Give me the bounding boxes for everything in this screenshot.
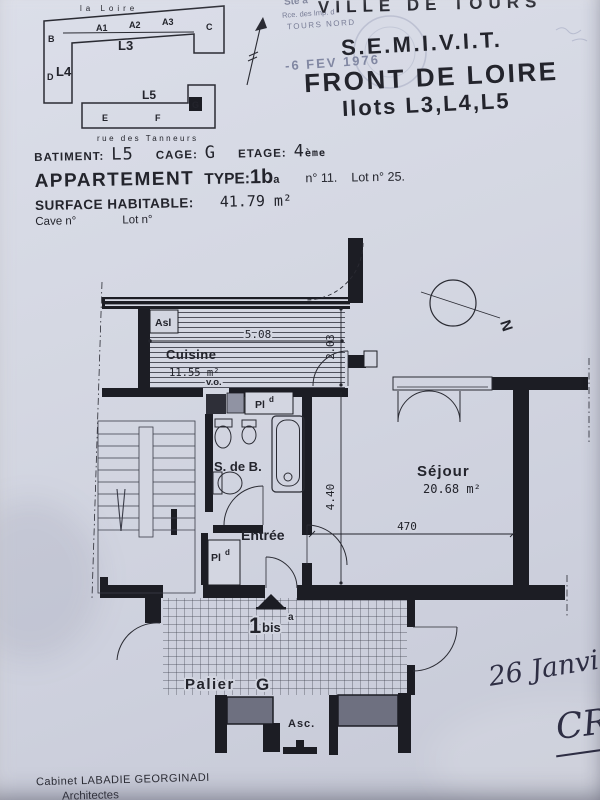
asl-label: Asl <box>155 317 171 329</box>
duct-shaft-light <box>227 393 244 413</box>
site-label-a2: A2 <box>129 20 141 30</box>
etage-label: ETAGE: <box>238 148 287 161</box>
cage-label: CAGE: <box>156 149 198 162</box>
dim-kitchen-width: 5.08 <box>245 328 272 341</box>
type-label: TYPE: <box>204 170 250 189</box>
room-label-bathroom: S. de B. <box>214 459 262 474</box>
room-label-landing: Palier <box>185 676 235 693</box>
lot-number: Lot n° 25. <box>351 170 405 185</box>
bidet-icon <box>242 426 256 444</box>
pillar-box <box>364 351 377 367</box>
dim-living-depth: 4.40 <box>324 484 337 511</box>
site-label-g: G <box>192 100 199 110</box>
cave-label: Cave n° <box>35 215 76 228</box>
handwritten-initials: CR <box>554 702 600 748</box>
room-label-entry: Entrée <box>241 527 285 543</box>
batiment-label: BATIMENT: <box>34 151 104 164</box>
scanned-floor-plan-page: la Loire A1 A2 A3 C B L3 D L4 L5 E F G r… <box>0 0 600 800</box>
site-label-l3: L3 <box>118 38 133 53</box>
site-label-f: F <box>155 113 161 123</box>
elevator-car-right <box>338 695 398 726</box>
room-label-cuisine: Cuisine <box>166 347 216 362</box>
appartement-label: APPARTEMENT <box>34 168 194 193</box>
type-sup: a <box>273 174 279 186</box>
surface-value: 41.79 m² <box>220 192 293 211</box>
room-label-living: Séjour <box>417 463 470 480</box>
apartment-info-block: BATIMENT: L5 CAGE: G ETAGE: 4ème APPARTE… <box>34 140 406 228</box>
site-label-d: D <box>47 72 54 82</box>
closet-label-bottom-sup: d <box>225 548 230 557</box>
batiment-value: L5 <box>111 144 134 164</box>
apartment-row: APPARTEMENT TYPE: 1ba n° 11. Lot n° 25. <box>34 164 405 193</box>
bathroom-fixtures <box>213 416 304 494</box>
architect-title: Architectes <box>62 789 119 800</box>
site-label-a1: A1 <box>96 23 108 33</box>
duct-shaft-dark <box>206 394 226 414</box>
unit-number-small: bis <box>262 620 281 635</box>
elevator-car-left <box>227 697 273 724</box>
faint-pen-marks <box>556 28 587 41</box>
north-indicator-icon <box>421 280 500 326</box>
street-label: rue des Tanneurs <box>97 134 199 143</box>
lot-label2: Lot n° <box>122 214 152 227</box>
closet-label-bottom: Pl <box>211 552 221 564</box>
toilet-icon <box>215 426 231 448</box>
surface-label: SURFACE HABITABLE: <box>35 195 194 213</box>
unit-number-sup: a <box>288 612 294 623</box>
etage-sup: ème <box>305 148 326 159</box>
elevator-label: Asc. <box>288 718 315 730</box>
dim-kitchen-depth: 2.03 <box>325 334 337 359</box>
axis-line-left <box>92 282 102 598</box>
site-label-l5: L5 <box>142 88 156 102</box>
apartment-number: n° 11. <box>305 171 337 186</box>
site-label-l4: L4 <box>56 64 72 79</box>
cage-value: G <box>205 143 217 163</box>
site-plan <box>44 6 267 128</box>
closet-label-top: Pl <box>255 399 265 411</box>
closet-label-top-sup: d <box>269 395 274 404</box>
staircase <box>98 421 195 593</box>
dim-living-width: 470 <box>397 520 417 533</box>
type-value: 1b <box>250 166 274 189</box>
room-area-living: 20.68 m² <box>423 482 481 496</box>
vo-label: v.o. <box>206 377 222 388</box>
site-label-e: E <box>102 113 108 123</box>
unit-number-big: 1 <box>249 613 261 638</box>
landing-cage-letter: G <box>256 675 269 694</box>
site-label-c: C <box>206 22 213 32</box>
site-label-b: B <box>48 34 55 44</box>
site-label-a3: A3 <box>162 17 174 27</box>
etage-value: 4 <box>293 141 305 161</box>
north-arrow-icon <box>247 17 267 85</box>
river-label: la Loire <box>80 4 138 13</box>
north-letter: N <box>496 318 516 334</box>
